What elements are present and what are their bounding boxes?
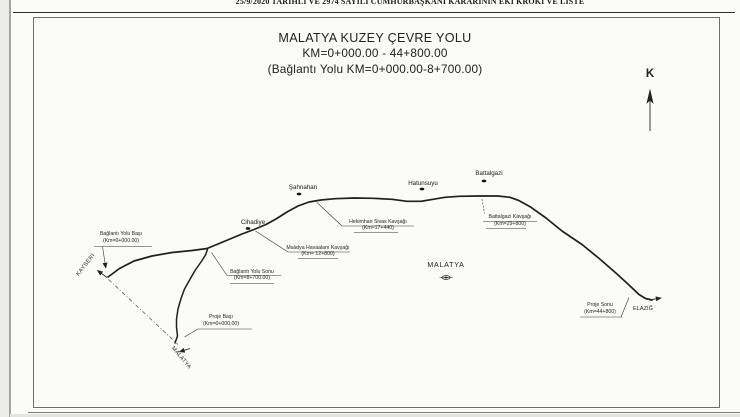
settlement-label-battalgazi: Battalgazi: [454, 170, 524, 177]
malatya-city-symbol: [440, 276, 453, 280]
battalgazi-kavsagi-leader: [482, 199, 485, 214]
waypoint-km: (Km= 12+800): [273, 251, 363, 258]
waypoint-name: Battalgazi Kavşağı: [465, 214, 555, 221]
elazig-direction-arrow: [650, 298, 661, 300]
settlement-label-hatunsuyu: Hatunsuyu: [388, 180, 458, 187]
waypoint-name: Bağlantı Yolu Başı: [76, 231, 166, 238]
waypoint-km: (Km=0+000.00): [176, 321, 266, 328]
existing-road-dashed-line: [109, 280, 179, 345]
waypoint-label-battalgazi-kavsagi: Battalgazi Kavşağı (Km=29+800): [465, 214, 555, 227]
waypoint-label-baglanti-sonu: Bağlantı Yolu Sonu (Km=8+700.00): [207, 269, 297, 282]
waypoint-km: (Km=0+000.00): [76, 238, 166, 245]
proje-basi-leader: [185, 329, 199, 337]
city-label-malatya: MALATYA: [411, 262, 481, 269]
sahnahan-marker: [297, 193, 302, 196]
waypoint-km: (Km=29+800): [465, 221, 555, 228]
baglanti-basi-leader: [103, 247, 106, 269]
waypoint-name: Proje Başı: [176, 314, 266, 321]
cihadiye-marker: [246, 227, 251, 230]
hatunsuyu-marker: [420, 188, 425, 191]
kayseri-direction-arrow: [98, 271, 108, 278]
direction-label-elazig: ELAZIĞ: [626, 306, 660, 312]
battalgazi-marker: [482, 180, 487, 183]
waypoint-km: (Km=17+440): [333, 225, 423, 232]
waypoint-label-hekimhan-kavsagi: Hekimhan Sivas Kavşağı (Km=17+440): [333, 219, 423, 232]
waypoint-label-havaalani-kavsagi: Malatya Havaalanı Kavşağı (Km= 12+800): [273, 245, 363, 258]
main-road-line: [108, 196, 652, 300]
waypoint-label-proje-basi: Proje Başı (Km=0+000.00): [176, 314, 266, 327]
waypoint-label-baglanti-basi: Bağlantı Yolu Başı (Km=0+000.00): [76, 231, 166, 244]
malatya-direction-arrow: [180, 349, 191, 352]
route-linework: [0, 0, 740, 417]
waypoint-km: (Km=8+700.00): [207, 275, 297, 282]
settlement-label-sahnahan: Şahnahan: [268, 184, 338, 191]
scanned-map-page: 25/9/2020 TARİHLİ VE 2974 SAYILI CUMHURB…: [0, 0, 740, 417]
settlement-label-cihadiye: Cihadiye: [218, 219, 288, 226]
